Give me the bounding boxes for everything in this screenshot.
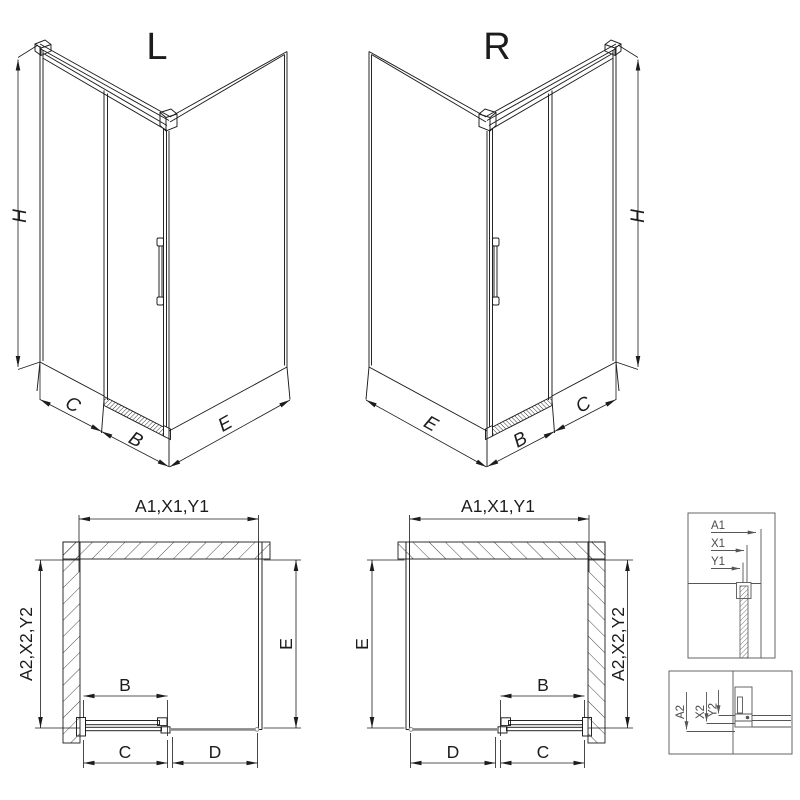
plan-dim-label-top-left: A1,X1,Y1: [135, 496, 209, 516]
dim-label-b-left: B: [125, 428, 146, 453]
plan-view-left: A1,X1,Y1 A2,X2,Y2 E B C D: [16, 496, 301, 768]
screw-icon: [746, 716, 750, 720]
plan-dim-label-wall-right: A2,X2,Y2: [608, 607, 628, 681]
plan-dim-label-depth-right: E: [352, 638, 372, 650]
plan-dim-label-d-left: D: [209, 742, 222, 762]
detail-label-a1: A1: [711, 520, 725, 532]
dim-label-h-right: H: [628, 209, 649, 223]
plan-view-right: A1,X1,Y1 A2,X2,Y2 E B D C: [352, 496, 633, 768]
iso-view-right: R H C B E: [366, 26, 649, 467]
detail-label-y2: Y2: [708, 703, 720, 717]
plan-dim-label-depth-left: E: [276, 638, 296, 650]
detail-label-x2: X2: [695, 705, 707, 719]
dim-label-b-right: B: [510, 428, 531, 453]
detail-rail-profile: [735, 687, 791, 727]
detail-glass-hatch: [740, 586, 748, 658]
dim-label-e-left: E: [215, 412, 237, 437]
plan-dim-label-wall-left: A2,X2,Y2: [16, 607, 36, 681]
iso-view-left: L H C B E: [10, 26, 290, 467]
view-title-left: L: [146, 26, 167, 68]
plan-dim-label-d-right: D: [447, 742, 460, 762]
view-title-right: R: [483, 26, 510, 68]
plan-dim-label-door-left: B: [119, 675, 131, 695]
detail-view-width: A1 X1 Y1: [688, 513, 775, 658]
detail-label-x1: X1: [711, 538, 725, 550]
dim-label-e-right: E: [420, 412, 442, 437]
dim-label-h-left: H: [10, 209, 31, 223]
plan-dim-label-top-right: A1,X1,Y1: [461, 496, 535, 516]
plan-dim-label-c-right: C: [537, 742, 550, 762]
shower-enclosure-technical-drawing: L H C B E R H C B E A1,X1,Y1 A2,X2,Y2 E …: [0, 0, 800, 800]
plan-dim-label-door-right: B: [537, 675, 549, 695]
drawing-sheet: L H C B E R H C B E A1,X1,Y1 A2,X2,Y2 E …: [0, 0, 800, 800]
plan-dim-label-c-left: C: [119, 742, 132, 762]
detail-view-depth: A2 X2 Y2: [669, 671, 792, 754]
detail-label-a2: A2: [675, 705, 687, 719]
detail-label-y1: Y1: [711, 556, 725, 568]
dim-label-c-left: C: [62, 393, 84, 418]
dim-label-c-right: C: [572, 393, 594, 418]
